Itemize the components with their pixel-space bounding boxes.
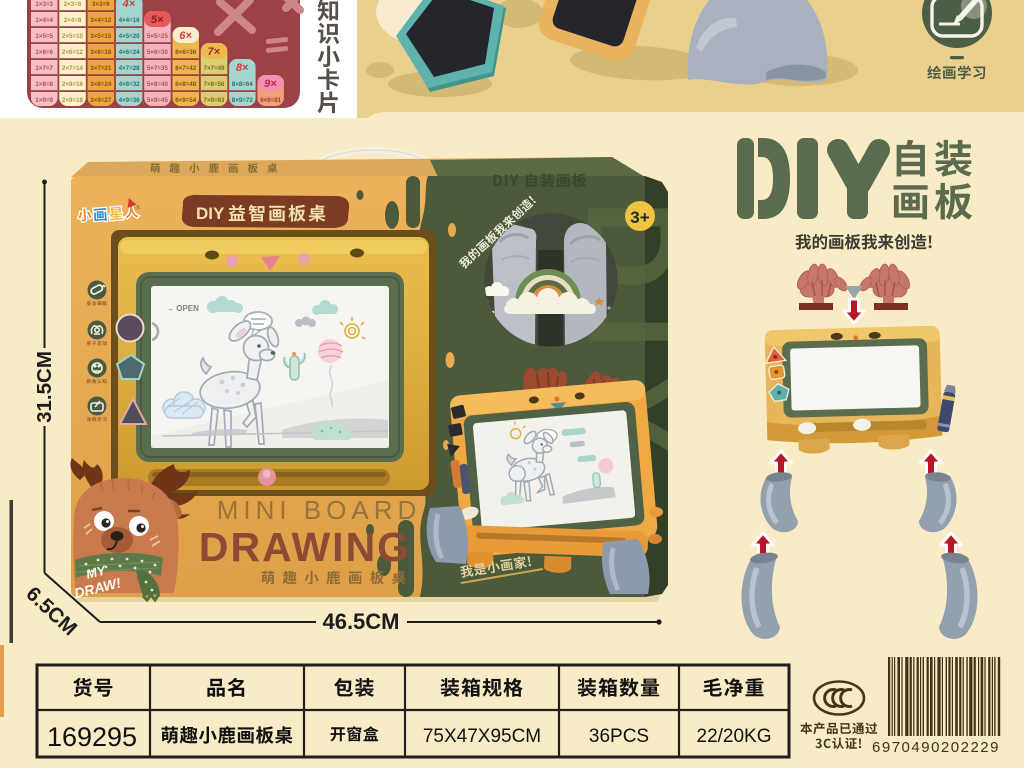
- svg-text:6×6=36: 6×6=36: [175, 49, 197, 56]
- svg-text:3×7=21: 3×7=21: [90, 65, 112, 72]
- svg-text:8×9=72: 8×9=72: [232, 97, 254, 104]
- svg-text:2×9=18: 2×9=18: [62, 97, 84, 104]
- svg-text:4×9=36: 4×9=36: [119, 97, 141, 104]
- svg-text:2×4=8: 2×4=8: [64, 17, 82, 24]
- svg-text:36PCS: 36PCS: [589, 726, 649, 747]
- svg-text:3×8=24: 3×8=24: [90, 81, 112, 88]
- svg-text:7×: 7×: [208, 46, 221, 58]
- svg-text:1×5=5: 1×5=5: [35, 33, 53, 40]
- svg-text:2×7=14: 2×7=14: [62, 65, 84, 72]
- svg-text:4×: 4×: [122, 0, 136, 10]
- svg-text:1×9=9: 1×9=9: [35, 97, 53, 104]
- svg-text:4×6=24: 4×6=24: [119, 49, 141, 56]
- svg-text:4×8=32: 4×8=32: [119, 81, 141, 88]
- svg-text:4×7=28: 4×7=28: [119, 65, 141, 72]
- svg-text:5×6=30: 5×6=30: [147, 49, 169, 56]
- svg-text:4×4=16: 4×4=16: [119, 17, 141, 24]
- svg-text:1×8=8: 1×8=8: [35, 81, 53, 88]
- svg-text:7×9=63: 7×9=63: [204, 97, 226, 104]
- svg-text:1×7=7: 1×7=7: [35, 65, 53, 72]
- svg-text:DRAWING: DRAWING: [199, 524, 411, 570]
- svg-text:9×9=81: 9×9=81: [260, 97, 282, 104]
- svg-text:9×: 9×: [264, 78, 277, 90]
- svg-text:5×8=40: 5×8=40: [147, 81, 169, 88]
- svg-text:3×9=27: 3×9=27: [90, 97, 112, 104]
- svg-text:5×: 5×: [151, 14, 164, 26]
- svg-text:6×: 6×: [179, 30, 192, 42]
- svg-text:6×9=54: 6×9=54: [175, 97, 197, 104]
- svg-text:6970490202229: 6970490202229: [872, 739, 1000, 756]
- svg-text:5×9=45: 5×9=45: [147, 97, 169, 104]
- svg-text:169295: 169295: [47, 722, 137, 752]
- svg-text:31.5CM: 31.5CM: [33, 351, 56, 423]
- svg-text:46.5CM: 46.5CM: [322, 609, 399, 634]
- svg-text:6×7=42: 6×7=42: [175, 65, 197, 72]
- svg-text:1×6=6: 1×6=6: [35, 49, 53, 56]
- svg-text:8×8=64: 8×8=64: [232, 81, 254, 88]
- svg-text:2×6=12: 2×6=12: [62, 49, 84, 56]
- svg-text:DIY: DIY: [196, 204, 225, 223]
- svg-text:8×: 8×: [236, 62, 249, 74]
- svg-text:6×8=48: 6×8=48: [175, 81, 197, 88]
- svg-text:5×7=35: 5×7=35: [147, 65, 169, 72]
- svg-text:7×8=56: 7×8=56: [204, 81, 226, 88]
- svg-text:→ OPEN: → OPEN: [166, 304, 199, 313]
- svg-text:2×8=16: 2×8=16: [62, 81, 84, 88]
- svg-text:22/20KG: 22/20KG: [697, 726, 772, 747]
- svg-text:3×5=15: 3×5=15: [90, 33, 112, 40]
- svg-text:1×4=4: 1×4=4: [35, 17, 53, 24]
- svg-text:4×5=20: 4×5=20: [119, 33, 141, 40]
- svg-text:3×3=9: 3×3=9: [92, 1, 110, 8]
- svg-text:7×7=49: 7×7=49: [204, 65, 226, 72]
- svg-text:75X47X95CM: 75X47X95CM: [423, 726, 541, 747]
- svg-text:1×3=3: 1×3=3: [35, 1, 53, 8]
- svg-text:3+: 3+: [630, 208, 649, 227]
- svg-text:2×5=10: 2×5=10: [62, 33, 84, 40]
- svg-text:3×6=18: 3×6=18: [90, 49, 112, 56]
- svg-text:2×3=6: 2×3=6: [64, 1, 82, 8]
- svg-text:MINI BOARD: MINI BOARD: [217, 495, 422, 525]
- svg-text:3×4=12: 3×4=12: [90, 17, 112, 24]
- svg-text:5×5=25: 5×5=25: [147, 33, 169, 40]
